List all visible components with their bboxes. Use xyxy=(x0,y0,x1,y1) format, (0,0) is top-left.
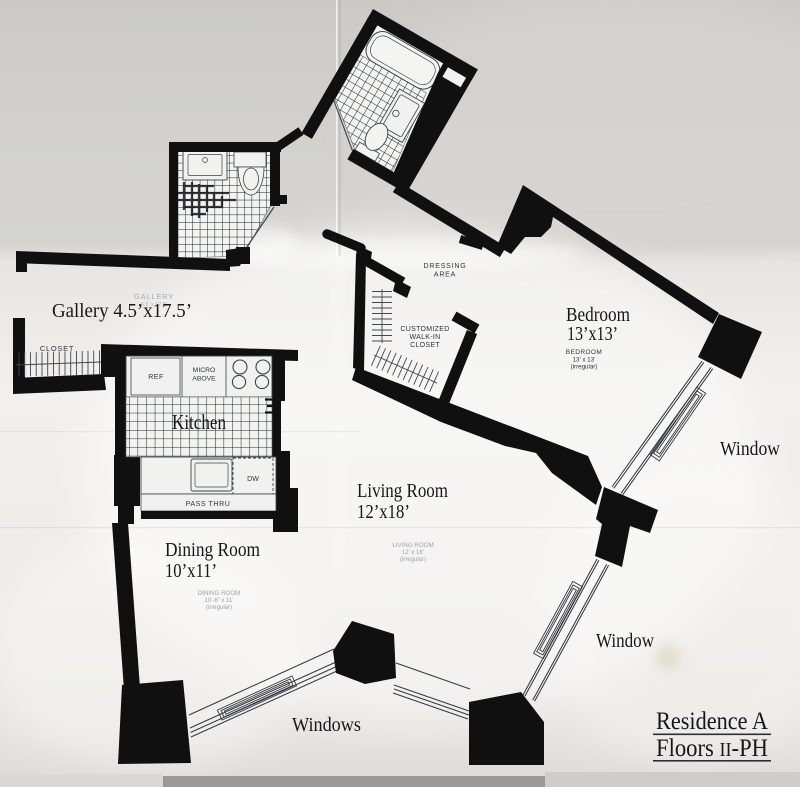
svg-text:ABOVE: ABOVE xyxy=(192,376,216,383)
svg-text:Living Room: Living Room xyxy=(357,480,448,502)
svg-text:CLOSET: CLOSET xyxy=(410,342,440,349)
svg-text:DINING ROOM: DINING ROOM xyxy=(198,590,241,597)
svg-text:12’x18’: 12’x18’ xyxy=(357,501,410,523)
svg-text:Window: Window xyxy=(720,438,780,460)
svg-text:Floors II-PH: Floors II-PH xyxy=(656,735,768,762)
svg-text:DW: DW xyxy=(247,476,259,483)
svg-text:Dining Room: Dining Room xyxy=(165,539,260,561)
svg-text:DRESSING: DRESSING xyxy=(424,263,467,270)
svg-text:10’-6” x 11’: 10’-6” x 11’ xyxy=(204,598,233,604)
svg-text:Residence A: Residence A xyxy=(656,708,768,735)
svg-text:MICRO: MICRO xyxy=(193,367,216,374)
svg-text:Gallery 4.5’x17.5’: Gallery 4.5’x17.5’ xyxy=(52,300,192,322)
svg-text:13’x13’: 13’x13’ xyxy=(567,323,618,345)
svg-text:(irregular): (irregular) xyxy=(571,364,598,371)
svg-text:CUSTOMIZED: CUSTOMIZED xyxy=(400,326,449,333)
svg-text:(irregular): (irregular) xyxy=(400,557,426,563)
svg-text:10’x11’: 10’x11’ xyxy=(165,560,217,582)
svg-text:Windows: Windows xyxy=(292,714,361,736)
svg-text:Kitchen: Kitchen xyxy=(172,410,226,434)
svg-text:Window: Window xyxy=(596,630,654,652)
svg-text:13’ x 13’: 13’ x 13’ xyxy=(573,357,596,364)
svg-text:REF: REF xyxy=(148,374,164,381)
svg-text:WALK-IN: WALK-IN xyxy=(409,334,440,341)
svg-text:12’ x 18’: 12’ x 18’ xyxy=(402,550,424,556)
svg-text:AREA: AREA xyxy=(434,272,456,279)
svg-text:LIVING ROOM: LIVING ROOM xyxy=(392,542,433,549)
svg-text:CLOSET: CLOSET xyxy=(40,344,74,353)
svg-text:(irregular): (irregular) xyxy=(206,605,232,611)
svg-text:PASS THRU: PASS THRU xyxy=(186,501,231,508)
svg-text:BEDROOM: BEDROOM xyxy=(566,349,602,356)
